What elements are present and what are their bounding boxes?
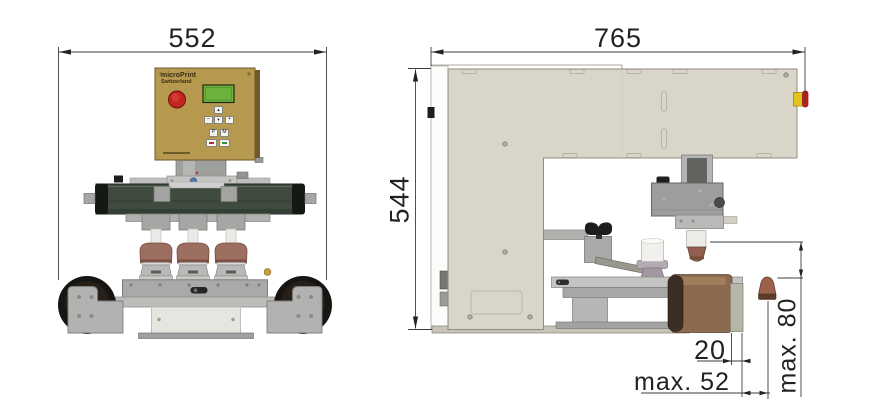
- front-base-stack: [116, 280, 275, 339]
- head-bracket: [676, 215, 724, 229]
- key-start: [219, 139, 230, 147]
- emergency-yellow-base: [794, 93, 804, 107]
- wheel-right: [267, 276, 332, 334]
- panel-fine-print: [163, 152, 190, 154]
- roller: [668, 275, 743, 333]
- dim-max-80: max. 80: [776, 291, 801, 401]
- panel-side-edge: [255, 70, 261, 158]
- print-pad-1: [140, 214, 173, 280]
- emergency-stop-side: [794, 91, 809, 107]
- print-pad-3: [215, 214, 248, 280]
- dim-max-52: max. 52: [634, 370, 726, 395]
- key-stop: [206, 139, 217, 147]
- side-panel-edge: [431, 66, 448, 329]
- roller-end-plate: [731, 284, 744, 332]
- emergency-stop-highlight: [172, 94, 180, 102]
- dim-offset-20: 20: [686, 337, 734, 364]
- roller-end-ring: [668, 276, 683, 332]
- sensor-box: [114, 176, 123, 183]
- switch-block: [440, 292, 448, 306]
- front-view: [58, 47, 332, 339]
- print-pad-2: [177, 214, 210, 280]
- dim-front-width: 552: [58, 25, 327, 52]
- key-down: ▼: [214, 116, 223, 124]
- base-slot: [191, 287, 208, 294]
- wheel-left: [58, 276, 123, 334]
- side-view: [408, 47, 808, 399]
- panel-brand-text: microPrint: [161, 72, 196, 79]
- key-p: P: [209, 129, 218, 137]
- bar-endcap-left: [95, 184, 108, 215]
- connector-block: [440, 271, 448, 289]
- bar-axle-left: [84, 194, 95, 204]
- ink-cup-lever: [544, 222, 668, 277]
- panel-mount: [130, 158, 270, 186]
- print-head: [652, 155, 738, 261]
- head-side-dial: [715, 198, 725, 208]
- dim-side-width: 765: [431, 25, 805, 52]
- bar-axle-right: [305, 194, 316, 204]
- key-up: ▲: [214, 106, 223, 114]
- bar-endcap-right: [292, 184, 305, 215]
- panel-country-text: Switzerland: [161, 80, 192, 86]
- head-box: [652, 183, 724, 216]
- pad-holder: [687, 231, 707, 248]
- technical-drawing: 552 765 544 20 max. 52 max. 80 microPrin…: [0, 0, 875, 412]
- cable-clip: [428, 107, 435, 118]
- dim-side-height: 544: [387, 165, 414, 235]
- key-m: M: [220, 129, 229, 137]
- drawing-layer: [0, 0, 875, 412]
- key-plus: +: [225, 116, 234, 124]
- key-minus: –: [204, 116, 213, 124]
- loose-pad: [759, 277, 777, 300]
- wing-knob: [585, 222, 612, 235]
- gold-fitting: [264, 269, 271, 276]
